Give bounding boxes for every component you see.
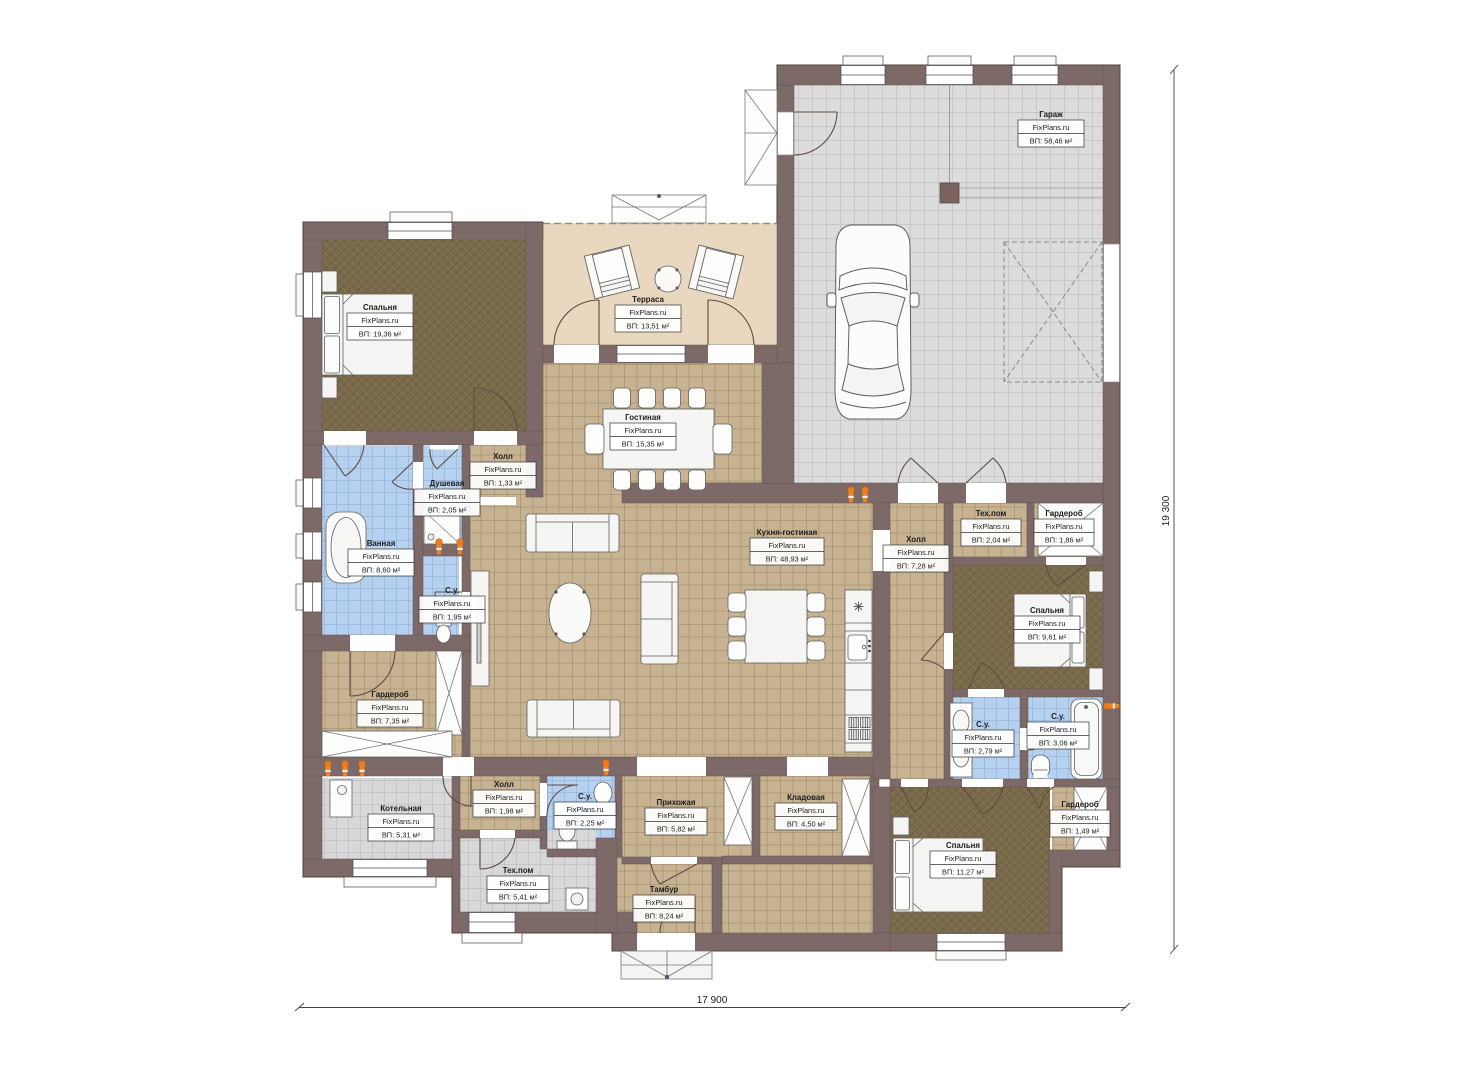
svg-text:С.у.: С.у.	[578, 792, 592, 801]
svg-text:Кухня-гостиная: Кухня-гостиная	[757, 528, 818, 537]
svg-text:Гардероб: Гардероб	[1061, 800, 1098, 809]
svg-text:ВП: 1,49 м²: ВП: 1,49 м²	[1061, 827, 1100, 836]
svg-text:ВП: 48,93 м²: ВП: 48,93 м²	[766, 555, 809, 564]
svg-text:ВП: 3,06 м²: ВП: 3,06 м²	[1039, 739, 1078, 748]
svg-text:FixPlans.ru: FixPlans.ru	[630, 308, 667, 317]
svg-text:Ванная: Ванная	[367, 539, 396, 548]
svg-text:ВП: 2,04 м²: ВП: 2,04 м²	[972, 536, 1011, 545]
svg-text:FixPlans.ru: FixPlans.ru	[1046, 522, 1083, 531]
svg-text:Холл: Холл	[494, 780, 514, 789]
svg-text:ВП: 1,33 м²: ВП: 1,33 м²	[484, 479, 523, 488]
svg-text:ВП: 1,95 м²: ВП: 1,95 м²	[433, 613, 472, 622]
svg-text:Гардероб: Гардероб	[371, 690, 408, 699]
svg-text:ВП: 7,35 м²: ВП: 7,35 м²	[371, 717, 410, 726]
svg-text:ВП: 4,50 м²: ВП: 4,50 м²	[787, 820, 826, 829]
svg-text:ВП: 2,05 м²: ВП: 2,05 м²	[428, 506, 467, 515]
svg-text:ВП: 5,41 м²: ВП: 5,41 м²	[499, 893, 538, 902]
svg-text:FixPlans.ru: FixPlans.ru	[1029, 619, 1066, 628]
svg-text:ВП: 7,28 м²: ВП: 7,28 м²	[897, 562, 936, 571]
svg-text:Спальня: Спальня	[1030, 606, 1064, 615]
svg-text:FixPlans.ru: FixPlans.ru	[788, 806, 825, 815]
svg-text:FixPlans.ru: FixPlans.ru	[362, 316, 399, 325]
svg-text:FixPlans.ru: FixPlans.ru	[945, 854, 982, 863]
svg-text:FixPlans.ru: FixPlans.ru	[486, 793, 523, 802]
svg-text:FixPlans.ru: FixPlans.ru	[500, 879, 537, 888]
svg-text:Кладовая: Кладовая	[787, 793, 825, 802]
svg-text:FixPlans.ru: FixPlans.ru	[1062, 813, 1099, 822]
svg-text:FixPlans.ru: FixPlans.ru	[898, 548, 935, 557]
svg-text:Гостиная: Гостиная	[625, 413, 661, 422]
svg-text:С.у.: С.у.	[1051, 712, 1065, 721]
svg-text:Гараж: Гараж	[1039, 110, 1063, 119]
svg-text:Тамбур: Тамбур	[650, 885, 679, 894]
svg-text:ВП: 5,82 м²: ВП: 5,82 м²	[657, 825, 696, 834]
svg-text:ВП: 8,24 м²: ВП: 8,24 м²	[645, 912, 684, 921]
svg-text:Душевая: Душевая	[430, 479, 465, 488]
svg-text:FixPlans.ru: FixPlans.ru	[1040, 725, 1077, 734]
svg-text:FixPlans.ru: FixPlans.ru	[1033, 123, 1070, 132]
svg-text:Прихожая: Прихожая	[657, 798, 696, 807]
svg-text:ВП: 2,25 м²: ВП: 2,25 м²	[566, 819, 605, 828]
svg-text:FixPlans.ru: FixPlans.ru	[658, 811, 695, 820]
svg-text:Холл: Холл	[906, 535, 926, 544]
svg-text:Котельная: Котельная	[380, 804, 422, 813]
svg-text:Спальня: Спальня	[946, 841, 980, 850]
svg-text:Тех.пом: Тех.пом	[976, 509, 1007, 518]
svg-text:ВП: 1,86 м²: ВП: 1,86 м²	[1045, 536, 1084, 545]
svg-text:ВП: 5,31 м²: ВП: 5,31 м²	[382, 831, 421, 840]
svg-text:FixPlans.ru: FixPlans.ru	[372, 703, 409, 712]
svg-text:FixPlans.ru: FixPlans.ru	[769, 541, 806, 550]
svg-text:Холл: Холл	[493, 452, 513, 461]
svg-text:FixPlans.ru: FixPlans.ru	[429, 492, 466, 501]
svg-text:FixPlans.ru: FixPlans.ru	[646, 898, 683, 907]
svg-text:ВП: 2,79 м²: ВП: 2,79 м²	[964, 747, 1003, 756]
svg-text:Гардероб: Гардероб	[1045, 509, 1082, 518]
svg-text:ВП: 11,27 м²: ВП: 11,27 м²	[942, 868, 984, 877]
svg-text:FixPlans.ru: FixPlans.ru	[363, 552, 400, 561]
svg-text:ВП: 19,36 м²: ВП: 19,36 м²	[359, 330, 402, 339]
svg-text:Спальня: Спальня	[363, 303, 397, 312]
svg-text:С.у.: С.у.	[976, 720, 990, 729]
svg-text:FixPlans.ru: FixPlans.ru	[625, 426, 662, 435]
svg-text:Терраса: Терраса	[632, 295, 664, 304]
svg-text:ВП: 9,61 м²: ВП: 9,61 м²	[1028, 633, 1067, 642]
svg-text:FixPlans.ru: FixPlans.ru	[567, 805, 604, 814]
svg-text:ВП: 58,46 м²: ВП: 58,46 м²	[1030, 137, 1073, 146]
svg-text:FixPlans.ru: FixPlans.ru	[973, 522, 1010, 531]
svg-text:Тех.пом: Тех.пом	[503, 866, 534, 875]
svg-text:ВП: 8,60 м²: ВП: 8,60 м²	[362, 566, 401, 575]
svg-text:FixPlans.ru: FixPlans.ru	[485, 465, 522, 474]
svg-text:FixPlans.ru: FixPlans.ru	[383, 817, 420, 826]
svg-text:ВП: 15,35 м²: ВП: 15,35 м²	[622, 440, 665, 449]
svg-text:С.у.: С.у.	[445, 586, 459, 595]
svg-text:ВП: 1,98 м²: ВП: 1,98 м²	[485, 807, 524, 816]
svg-text:FixPlans.ru: FixPlans.ru	[434, 599, 471, 608]
svg-text:ВП: 13,51 м²: ВП: 13,51 м²	[627, 322, 670, 331]
svg-text:FixPlans.ru: FixPlans.ru	[965, 733, 1002, 742]
svg-text:17 900: 17 900	[697, 995, 728, 1006]
svg-text:19 300: 19 300	[1161, 495, 1172, 526]
